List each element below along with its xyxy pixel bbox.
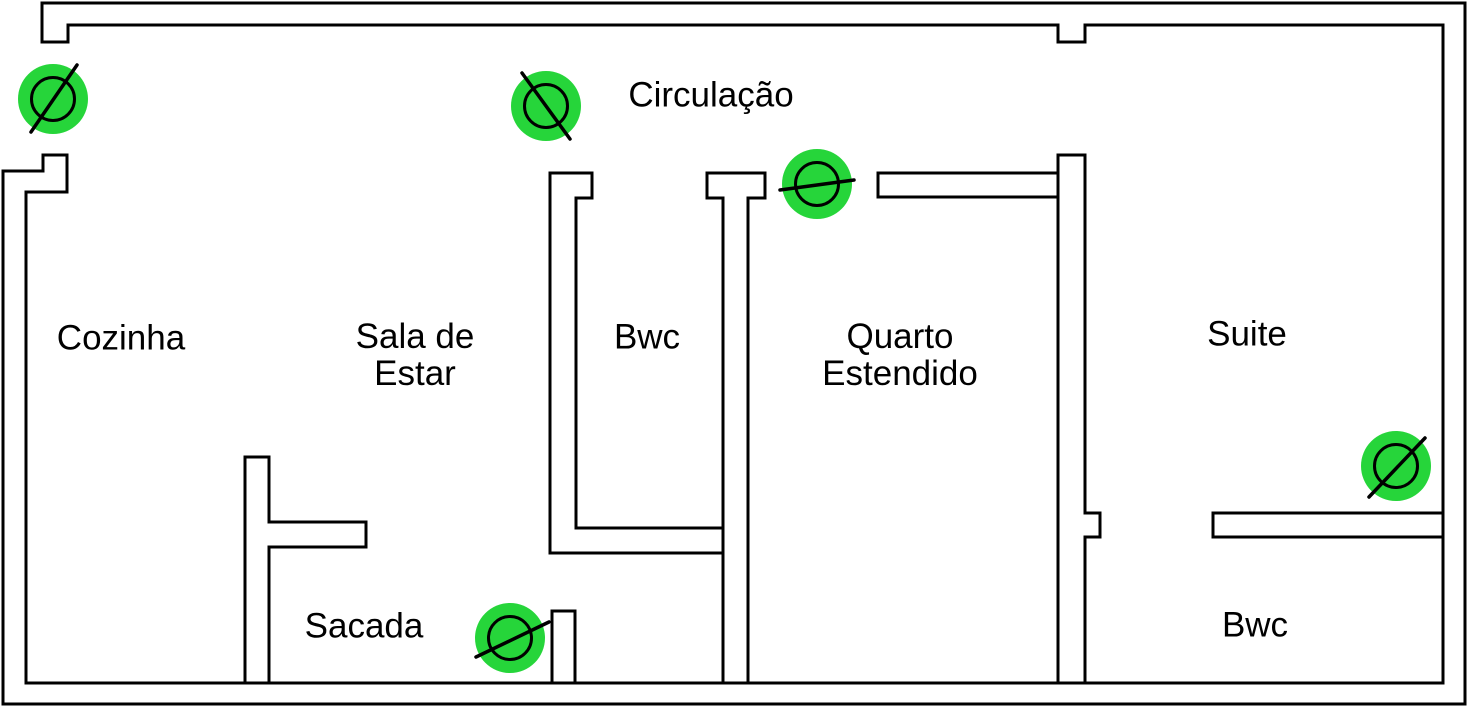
wall-quarto-suite-wall (1058, 155, 1100, 683)
room-label-suite: Suite (1207, 316, 1287, 353)
room-label-cozinha: Cozinha (57, 320, 185, 357)
room-label-sacada: Sacada (305, 608, 424, 645)
floor-plan: CozinhaSala de EstarBwcCirculaçãoQuarto … (0, 0, 1470, 711)
lamp-sacada-highlight-disc (475, 603, 545, 673)
lamp-suite-symbol (1361, 431, 1431, 501)
room-label-circulacao: Circulação (628, 77, 793, 114)
wall-suite-bwc-wall (1213, 513, 1443, 537)
lamp-circulacao-symbol (511, 71, 581, 141)
lamp-quarto-symbol (780, 149, 854, 219)
room-label-bwc-suite: Bwc (1222, 607, 1288, 644)
room-label-sala-de-estar: Sala de Estar (356, 318, 475, 392)
wall-quarto-top-wall (878, 173, 1058, 197)
lamp-sacada-symbol (475, 603, 549, 673)
wall-sacada-left-wall (245, 457, 366, 683)
lamp-entrance-symbol (18, 64, 88, 134)
room-label-quarto-estendido: Quarto Estendido (822, 318, 978, 392)
wall-bwc-left-wall (550, 173, 723, 553)
wall-bwc-quarto-wall (707, 173, 765, 683)
room-label-bwc-social: Bwc (614, 319, 680, 356)
wall-sacada-right-stub (552, 611, 575, 683)
